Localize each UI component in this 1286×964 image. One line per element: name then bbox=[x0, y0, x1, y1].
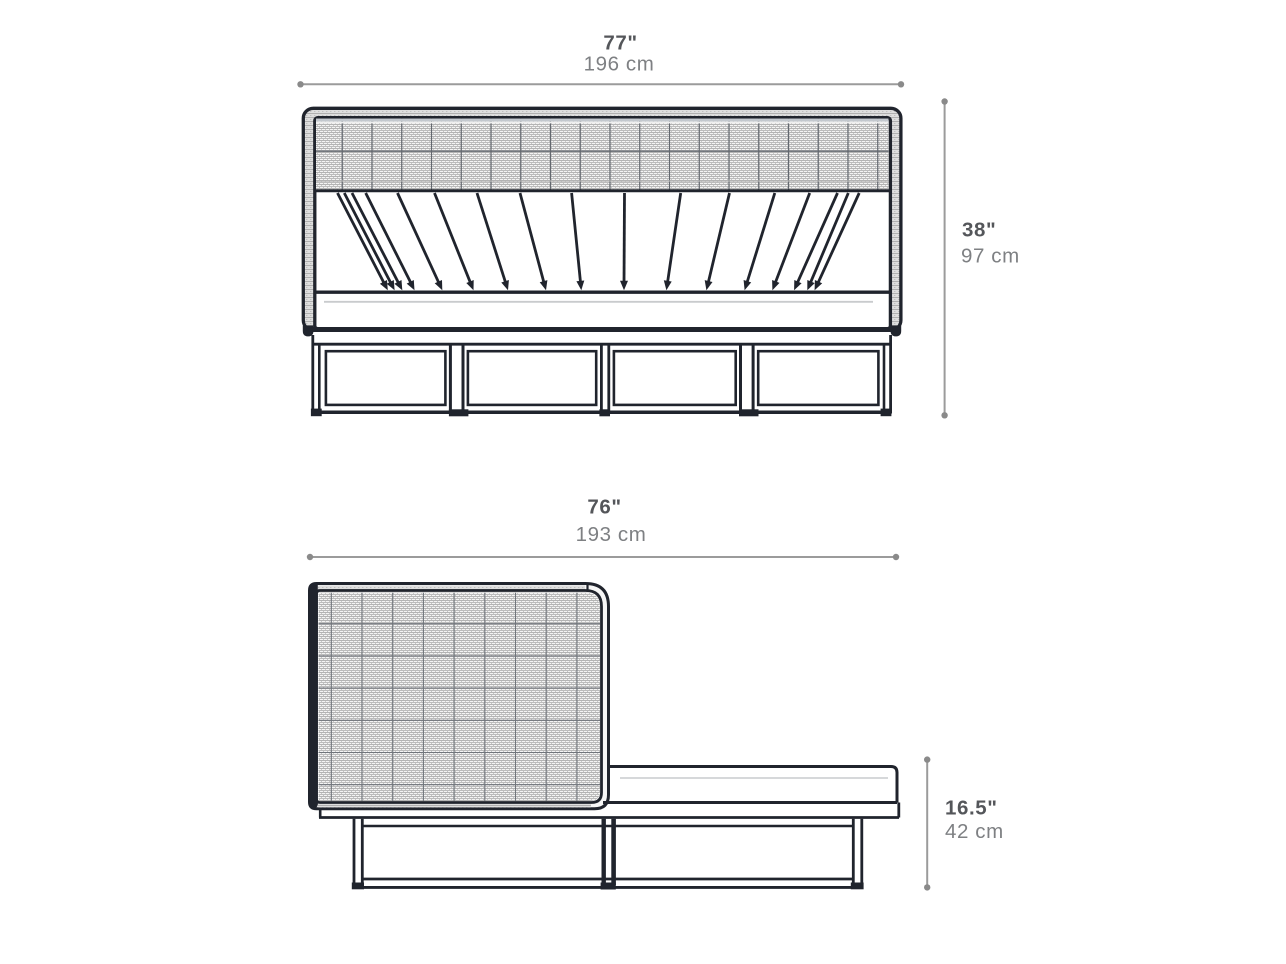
svg-text:196 cm: 196 cm bbox=[584, 53, 655, 76]
svg-text:38": 38" bbox=[962, 219, 996, 242]
svg-text:76": 76" bbox=[587, 496, 621, 519]
svg-text:77": 77" bbox=[603, 32, 637, 55]
svg-text:193 cm: 193 cm bbox=[576, 523, 647, 546]
svg-text:97 cm: 97 cm bbox=[961, 245, 1020, 268]
svg-text:42 cm: 42 cm bbox=[945, 820, 1004, 843]
svg-text:16.5": 16.5" bbox=[945, 797, 998, 820]
